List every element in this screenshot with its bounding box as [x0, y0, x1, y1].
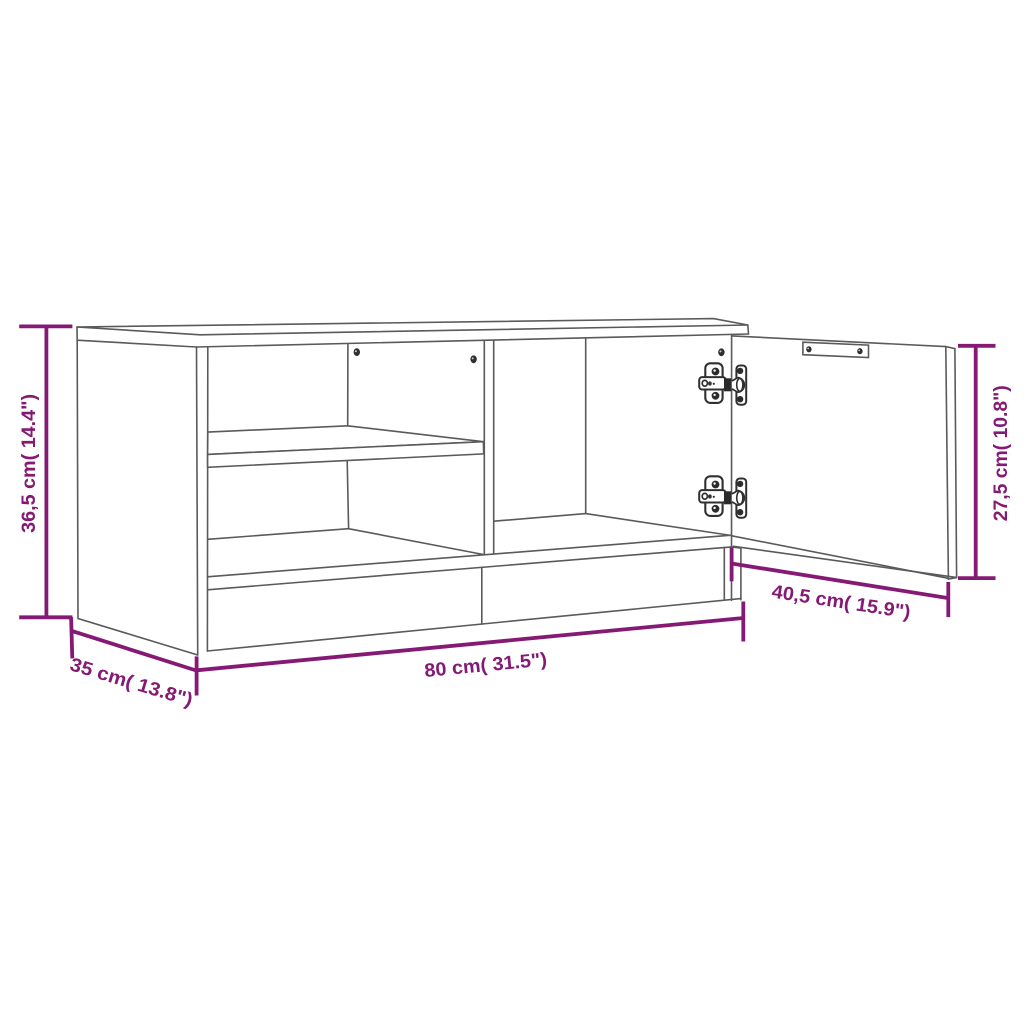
- svg-text:27,5 cm( 10.8"): 27,5 cm( 10.8"): [991, 385, 1012, 521]
- svg-text:36,5 cm( 14.4"): 36,5 cm( 14.4"): [19, 394, 40, 533]
